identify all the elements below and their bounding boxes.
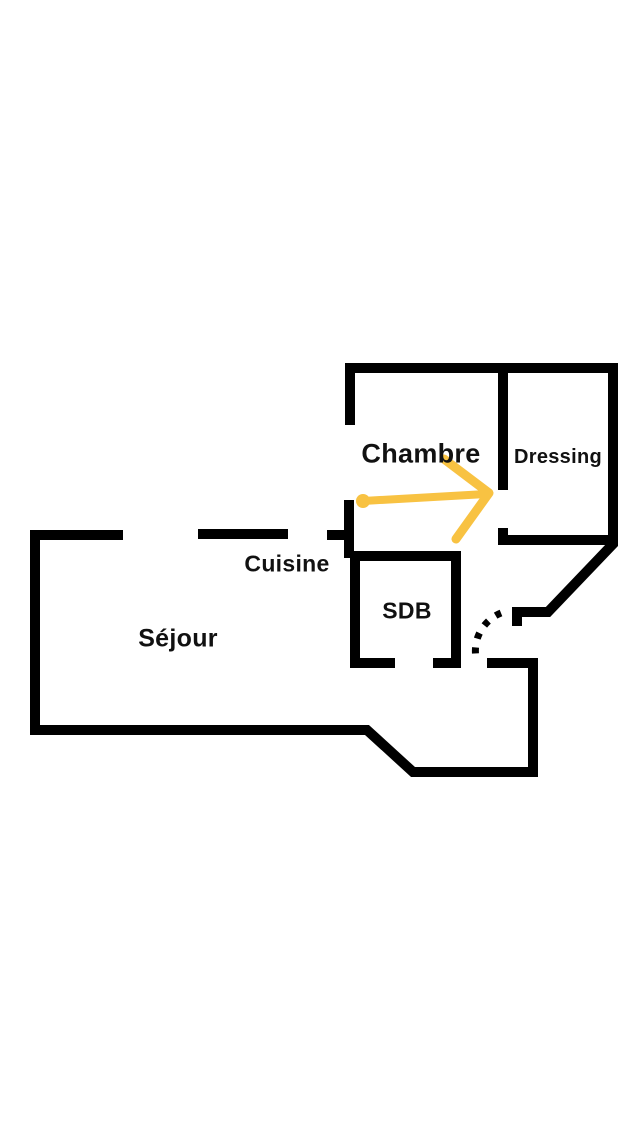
room-label-sejour: Séjour [138, 627, 218, 652]
wall-dressing-bottom [503, 528, 612, 540]
room-label-cuisine: Cuisine [244, 553, 329, 576]
room-label-dressing: Dressing [514, 447, 602, 467]
door-swing-arc [475, 613, 501, 658]
direction-arrow-shaft [363, 494, 486, 501]
room-label-chambre: Chambre [361, 441, 480, 468]
floor-plan: Chambre Dressing Cuisine SDB Séjour [0, 0, 640, 1136]
room-label-sdb: SDB [382, 600, 431, 623]
